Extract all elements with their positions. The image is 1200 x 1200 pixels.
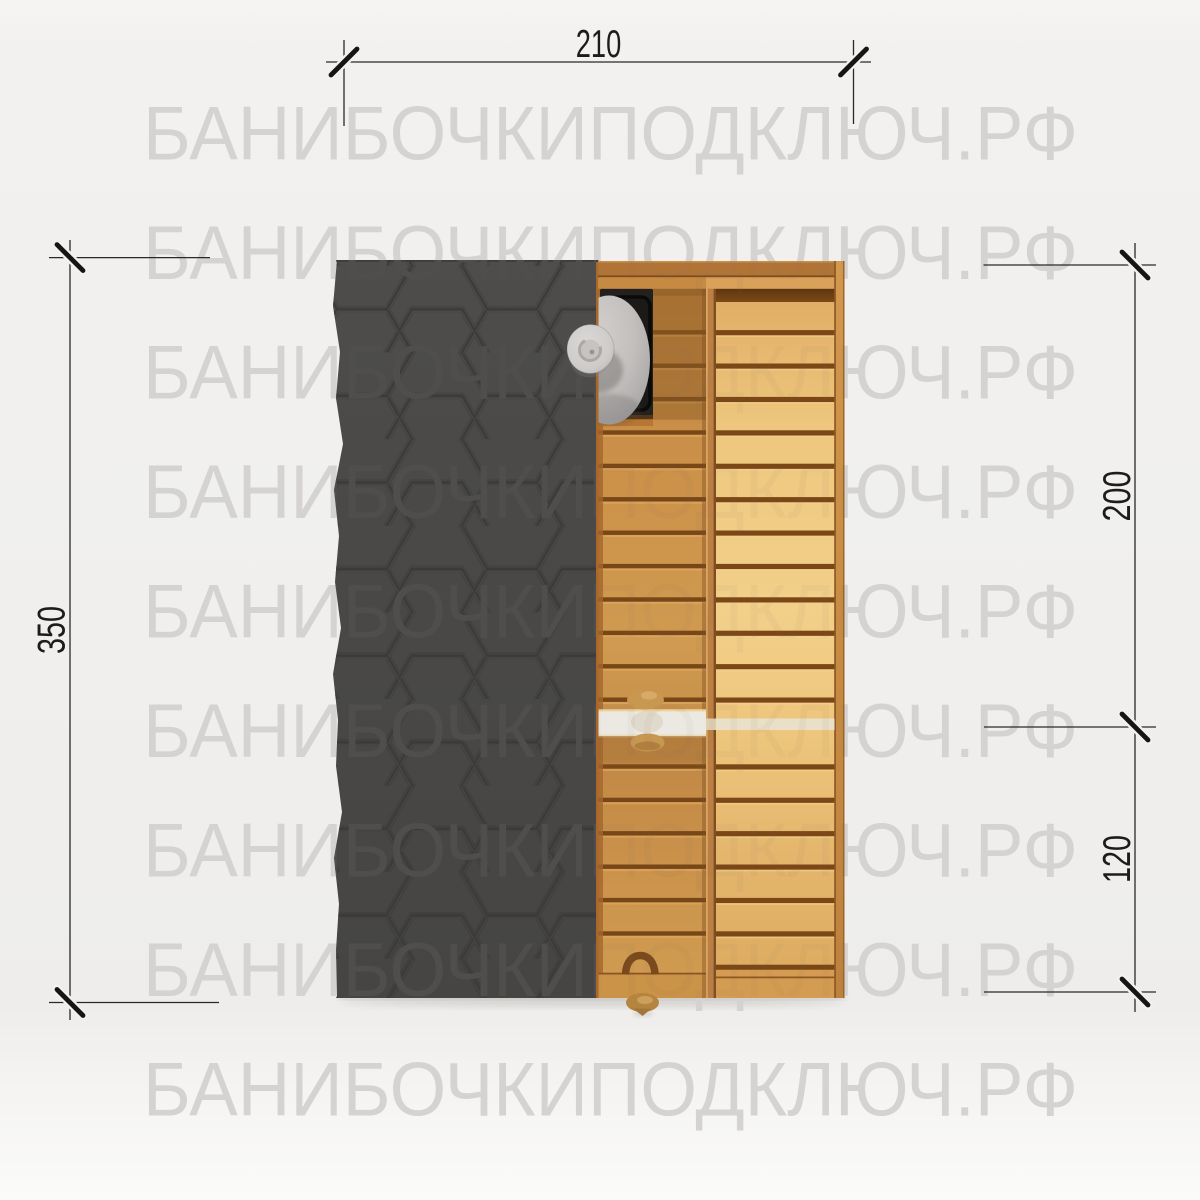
svg-text:350: 350 bbox=[31, 606, 74, 654]
svg-text:120: 120 bbox=[1096, 835, 1139, 883]
svg-text:200: 200 bbox=[1096, 471, 1139, 522]
svg-text:БАНИБОЧКИПОДКЛЮЧ.РФ: БАНИБОЧКИПОДКЛЮЧ.РФ bbox=[143, 1048, 1078, 1133]
svg-text:210: 210 bbox=[576, 23, 622, 66]
svg-text:БАНИБОЧКИПОДКЛЮЧ.РФ: БАНИБОЧКИПОДКЛЮЧ.РФ bbox=[143, 92, 1078, 177]
